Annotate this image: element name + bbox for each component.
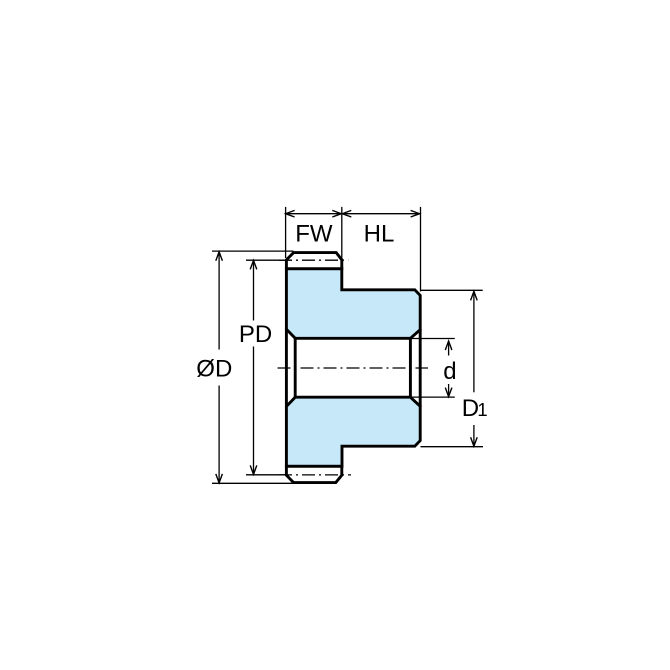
svg-text:d: d <box>443 358 456 385</box>
svg-text:PD: PD <box>239 321 272 348</box>
svg-text:1: 1 <box>477 399 487 420</box>
svg-text:ØD: ØD <box>196 356 232 383</box>
svg-text:HL: HL <box>364 221 395 248</box>
svg-text:FW: FW <box>295 221 333 248</box>
